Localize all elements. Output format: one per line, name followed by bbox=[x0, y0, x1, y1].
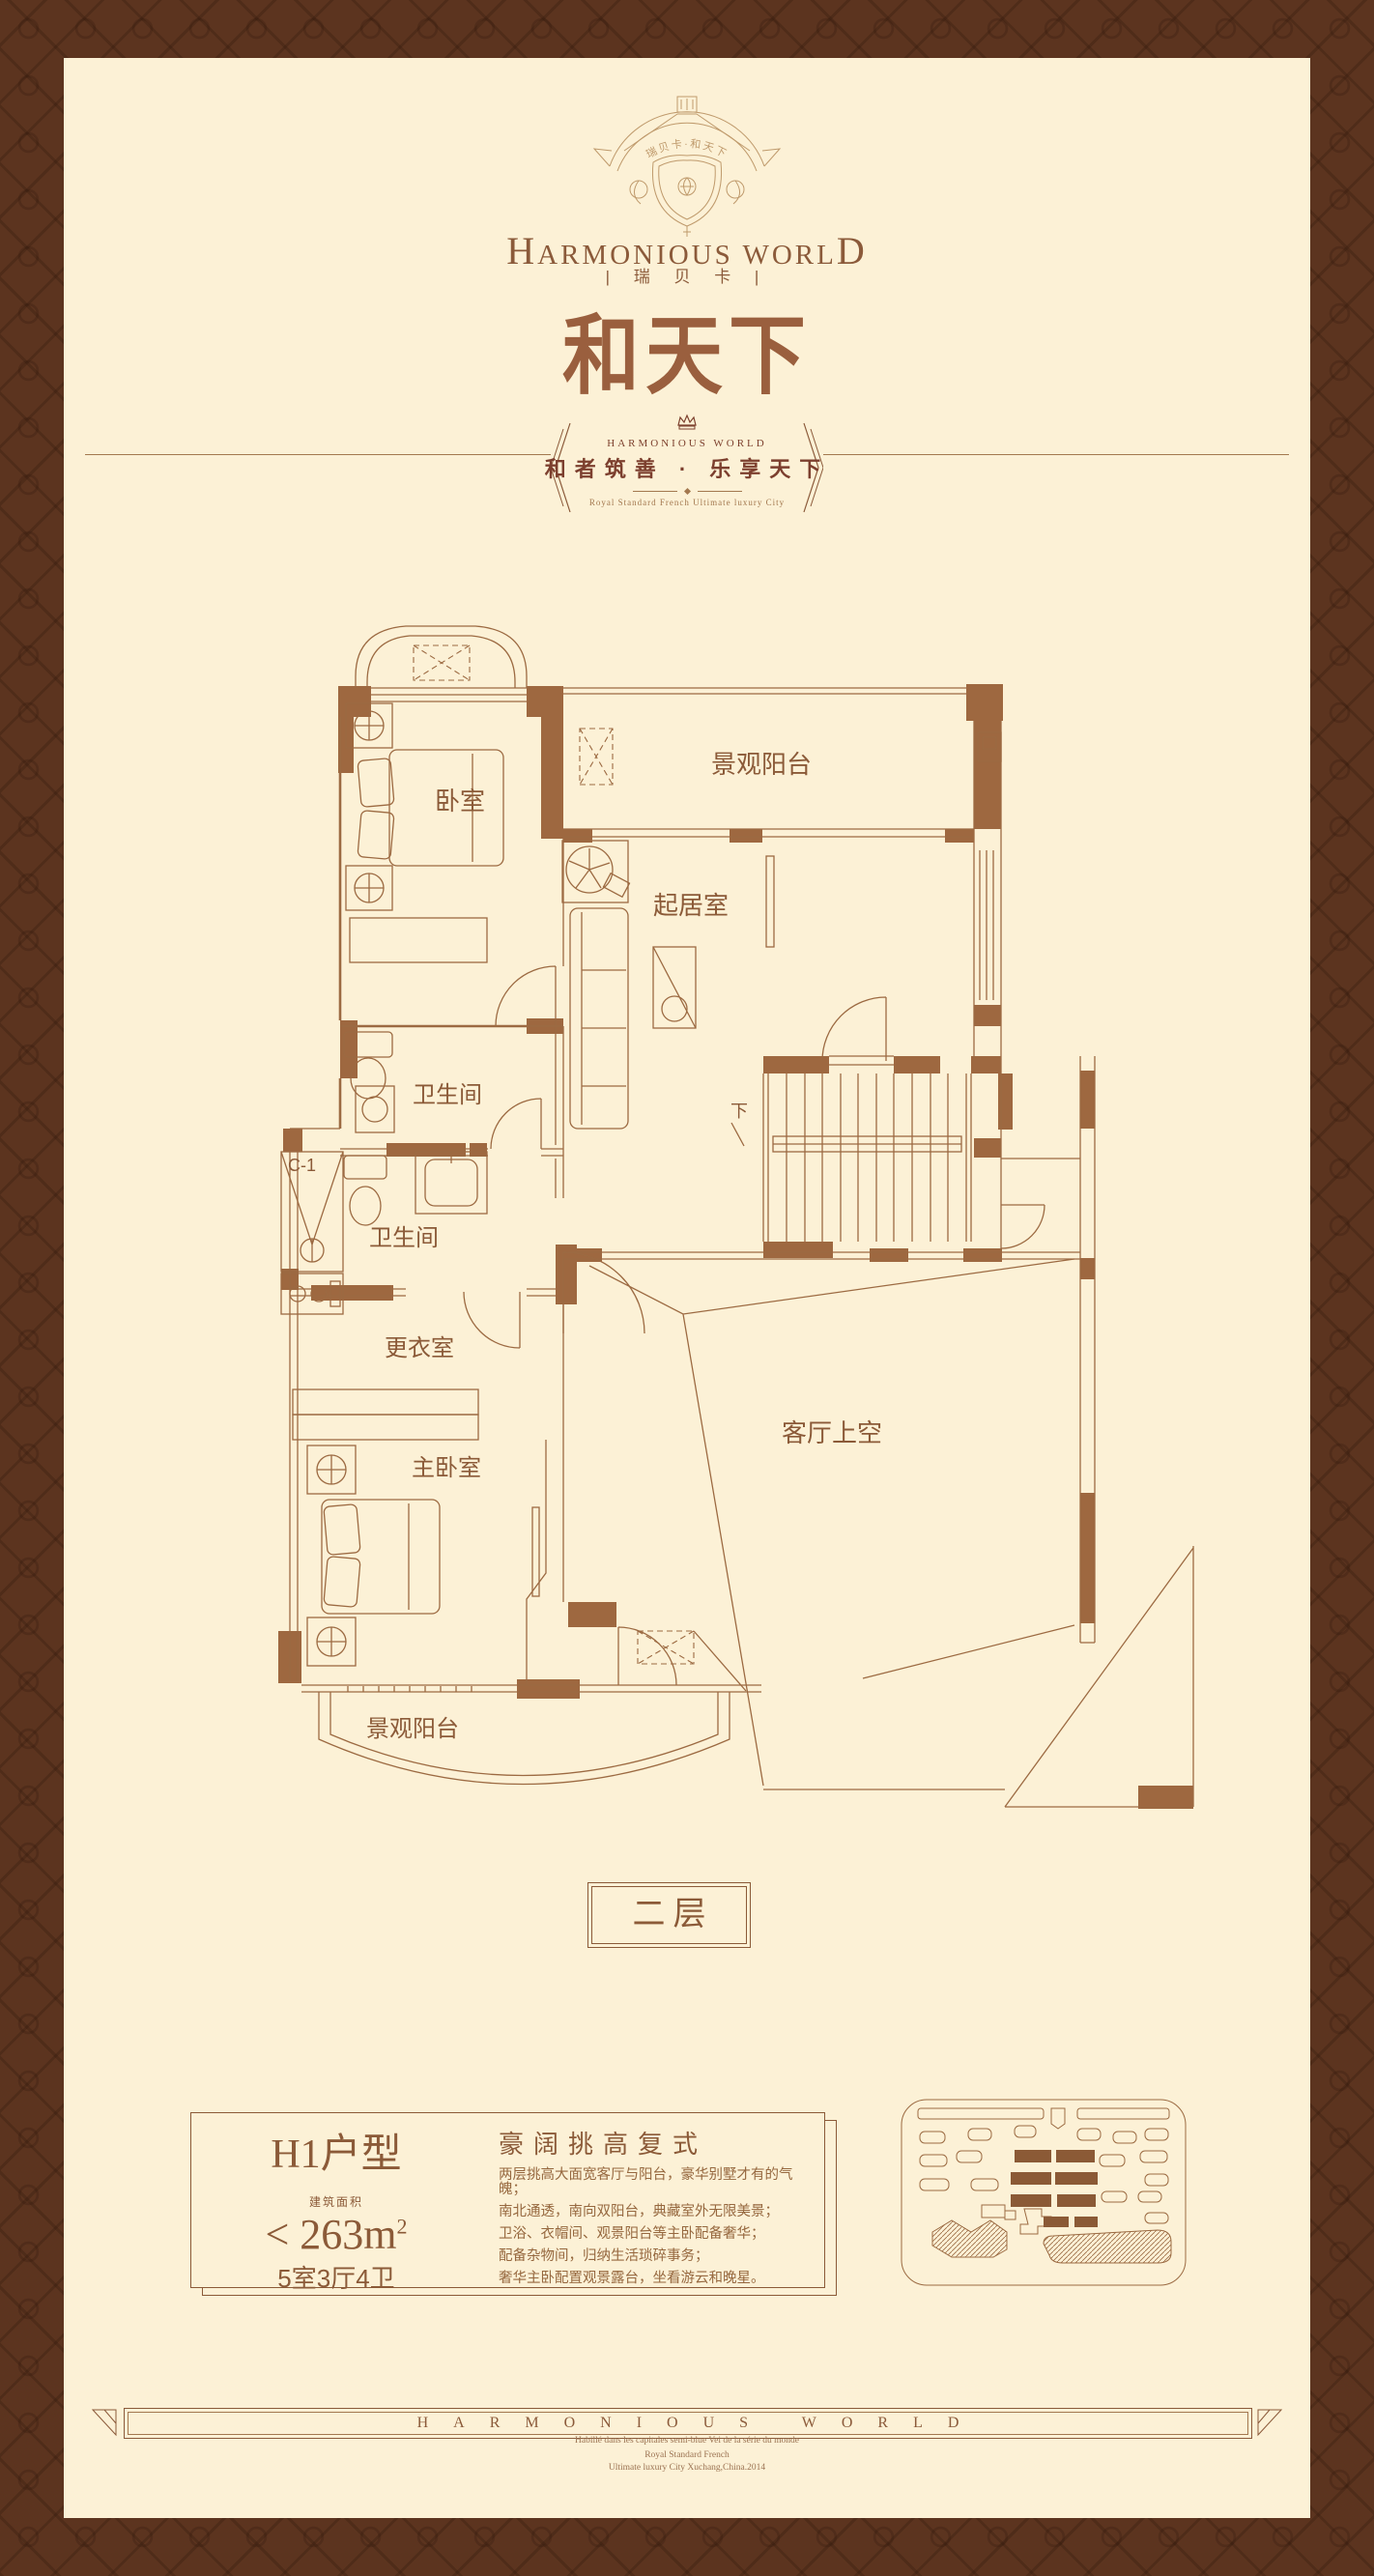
crest-banner-text: 瑞贝卡·和天下 bbox=[644, 137, 730, 160]
site-map bbox=[899, 2097, 1188, 2288]
room-label-bedroom: 卧室 bbox=[435, 787, 485, 816]
unit-description: 豪阔挑高复式 两层挑高大面宽客厅与阳台，豪华别墅才有的气魄； 南北通透，南向双阳… bbox=[499, 2125, 817, 2286]
room-label-bath-upper: 卫生间 bbox=[413, 1082, 482, 1108]
layout-summary: 5室3厅4卫 bbox=[191, 2259, 481, 2295]
room-label-bath-lower: 卫生间 bbox=[369, 1225, 439, 1251]
floor-plan: 卧室 景观阳台 起居室 卫生间 C-1 卫生间 更衣室 主卧室 客厅上空 景观阳… bbox=[271, 609, 1203, 1855]
room-label-living: 起居室 bbox=[653, 891, 729, 920]
bedroom-furniture bbox=[346, 703, 503, 962]
description-title: 豪阔挑高复式 bbox=[499, 2125, 817, 2161]
room-label-balcony-top: 景观阳台 bbox=[711, 750, 812, 779]
footer-banner: HARMONIOUS WORLD bbox=[124, 2408, 1252, 2439]
dressing-wardrobe bbox=[293, 1389, 478, 1440]
unit-summary: H1户型 建筑面积 < 263m2 5室3厅4卫 bbox=[191, 2113, 481, 2295]
brand-subtitle: | 瑞 贝 卡 | bbox=[0, 263, 1374, 287]
room-label-balcony-bottom: 景观阳台 bbox=[366, 1716, 459, 1742]
footer-line-2: Royal Standard French bbox=[0, 2450, 1374, 2460]
slogan-divider bbox=[0, 489, 1374, 494]
plan-doors bbox=[464, 966, 1045, 1685]
crown-icon bbox=[674, 414, 700, 431]
banner-end-left-icon bbox=[91, 2408, 118, 2437]
stairs-down-label: 下 bbox=[730, 1102, 748, 1121]
main-title: 和天下 bbox=[0, 286, 1374, 412]
description-line: 配备杂物间，归纳生活琐碎事务； bbox=[499, 2249, 817, 2264]
bathroom-fixtures bbox=[344, 1032, 487, 1225]
poster: 瑞贝卡·和天下 HARMONIOUS WORLD | 瑞 贝 卡 | 和天下 H… bbox=[0, 0, 1374, 2576]
banner-end-right-icon bbox=[1256, 2408, 1283, 2437]
brand-crest-icon: 瑞贝卡·和天下 bbox=[581, 95, 793, 240]
description-line: 南北通透，南向双阳台，典藏室外无限美景； bbox=[499, 2205, 817, 2219]
area-label: 建筑面积 bbox=[191, 2193, 481, 2210]
site-map-buildings bbox=[918, 2108, 1169, 2234]
footer-line-1: Habillé dans les capitales semi-blue Vei… bbox=[0, 2436, 1374, 2446]
staircase bbox=[731, 1073, 966, 1242]
site-map-highlighted-buildings bbox=[1011, 2150, 1098, 2227]
window-code-label: C-1 bbox=[288, 1156, 316, 1175]
slogan-block: HARMONIOUS WORLD 和者筑善 · 乐享天下 Royal Stand… bbox=[0, 414, 1374, 507]
living-furniture bbox=[562, 841, 774, 1129]
unit-name: H1户型 bbox=[191, 2121, 481, 2180]
area-value: < 263m2 bbox=[191, 2210, 481, 2259]
plan-wall-lines bbox=[290, 626, 1193, 1807]
floor-badge-label: 二层 bbox=[591, 1886, 747, 1944]
footer-line-3: Ultimate luxury City Xuchang,China.2014 bbox=[0, 2463, 1374, 2473]
slogan-subtext: Royal Standard French Ultimate luxury Ci… bbox=[0, 498, 1374, 507]
room-label-void: 客厅上空 bbox=[782, 1418, 882, 1447]
ac-unit-icons bbox=[414, 645, 1001, 1664]
floor-badge: 二层 bbox=[587, 1882, 751, 1948]
slogan-brand: HARMONIOUS WORLD bbox=[0, 438, 1374, 449]
footer-banner-text: HARMONIOUS WORLD bbox=[128, 2412, 1248, 2435]
description-line: 奢华主卧配置观景露台，坐看游云和晚星。 bbox=[499, 2272, 817, 2286]
description-line: 两层挑高大面宽客厅与阳台，豪华别墅才有的气魄； bbox=[499, 2168, 817, 2197]
info-box: H1户型 建筑面积 < 263m2 5室3厅4卫 豪阔挑高复式 两层挑高大面宽客… bbox=[190, 2112, 825, 2288]
room-label-master: 主卧室 bbox=[412, 1455, 481, 1481]
room-label-dressing: 更衣室 bbox=[385, 1335, 454, 1361]
description-line: 卫浴、衣帽间、观景阳台等主卧配备奢华； bbox=[499, 2227, 817, 2242]
slogan-text: 和者筑善 · 乐享天下 bbox=[0, 452, 1374, 483]
